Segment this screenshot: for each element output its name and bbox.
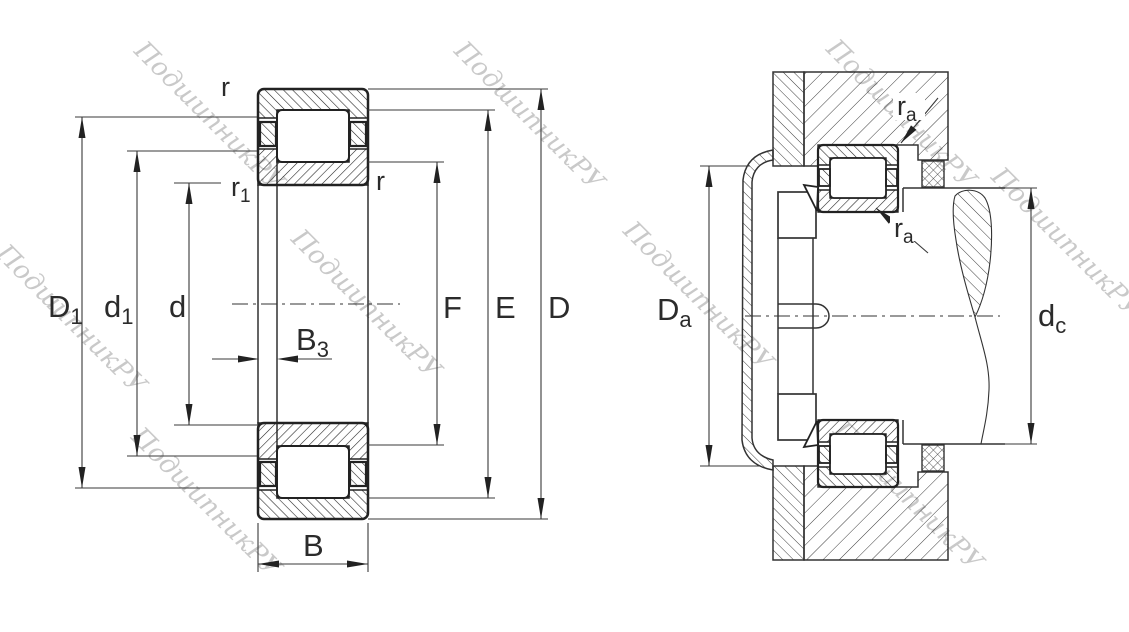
roller-bottom — [830, 434, 886, 474]
end-cap-skirt — [742, 150, 773, 470]
watermark-text: ПодшипникРУ — [616, 215, 780, 379]
label-dc: dc — [1038, 298, 1066, 338]
roller-bottom — [277, 446, 349, 498]
label-r1: r1 — [231, 172, 251, 207]
label-d1: d1 — [104, 289, 134, 329]
label-r-top: r — [221, 72, 230, 102]
label-F: F — [443, 290, 462, 325]
end-cap-flange-top — [773, 72, 804, 166]
end-cap-flange-bottom — [773, 466, 804, 560]
cage-bar — [260, 462, 276, 486]
cage-bar — [886, 169, 897, 186]
bearing-diagram: ПодшипникРУ ПодшипникРУ ПодшипникРУ Подш… — [0, 0, 1129, 632]
watermark-text: ПодшипникРУ — [447, 35, 611, 199]
right-view-arrangement — [742, 72, 1005, 560]
seal-ring-top — [922, 161, 944, 187]
shaft-break-line — [975, 317, 989, 444]
roller-top — [830, 158, 886, 198]
cage-bar — [819, 169, 830, 186]
label-D1: D1 — [48, 289, 83, 329]
shaft-section-teardrop — [953, 190, 991, 317]
roller-top — [277, 110, 349, 162]
label-d: d — [169, 289, 186, 324]
seal-ring-bottom — [922, 445, 944, 471]
cage-bar — [350, 122, 366, 146]
label-B: B — [303, 528, 324, 563]
watermark-text: ПодшипникРУ — [284, 223, 448, 387]
cage-bar — [886, 446, 897, 463]
label-D: D — [548, 290, 570, 325]
label-B3: B3 — [296, 322, 329, 362]
cage-bar — [260, 122, 276, 146]
label-r-right: r — [376, 166, 385, 196]
watermark-text: ПодшипникРУ — [984, 161, 1129, 325]
cage-bar — [819, 446, 830, 463]
label-E: E — [495, 290, 516, 325]
cage-bar — [350, 462, 366, 486]
technical-drawing-page: ПодшипникРУ ПодшипникРУ ПодшипникРУ Подш… — [0, 0, 1129, 632]
